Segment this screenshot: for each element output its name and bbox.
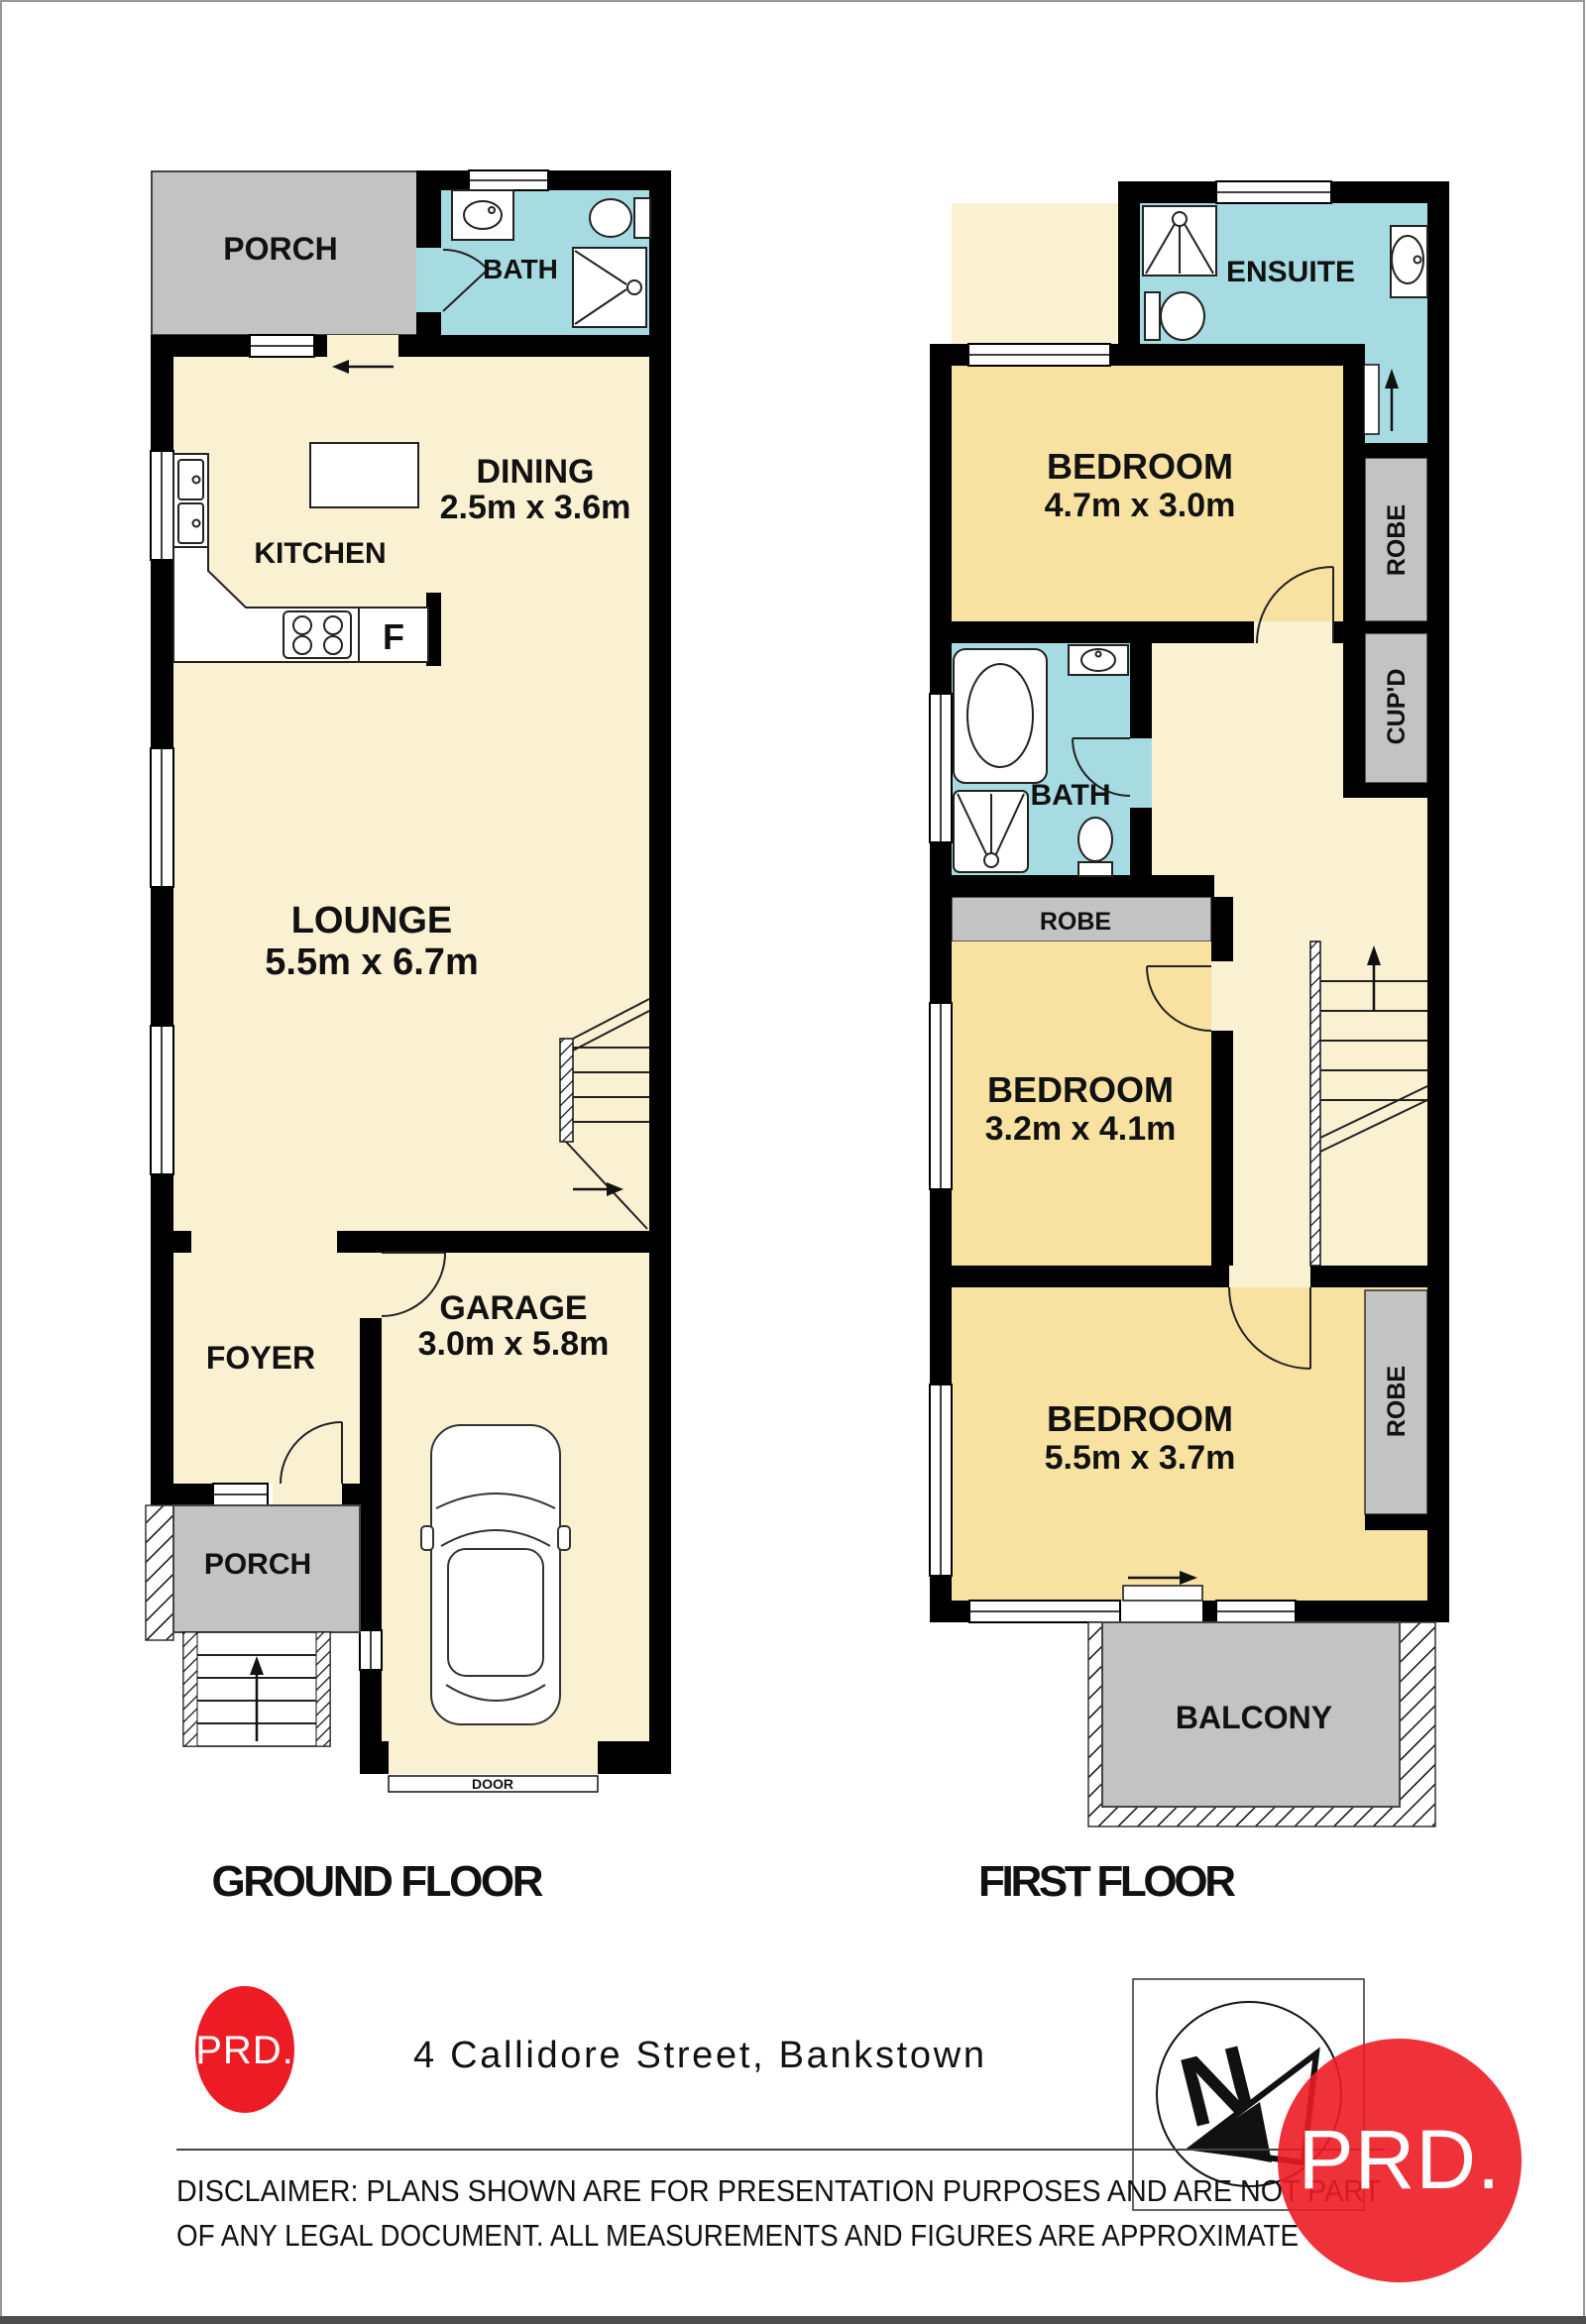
room-dims-bedroom-3: 5.5m x 3.7m xyxy=(1045,1439,1236,1477)
room-dims-bedroom-1: 4.7m x 3.0m xyxy=(1045,487,1236,524)
disclaimer-line-2: OF ANY LEGAL DOCUMENT. ALL MEASUREMENTS … xyxy=(176,2218,1299,2253)
room-label-garage: GARAGE xyxy=(439,1289,587,1327)
car-icon xyxy=(421,1425,570,1724)
room-label-robe-1: ROBE xyxy=(1383,504,1411,576)
bathtub-icon xyxy=(954,649,1047,783)
first-floor-plan: ENSUITE BEDROOM 4.7m x 3.0m ROBE CUP'D B… xyxy=(930,181,1449,1906)
room-dims-bedroom-2: 3.2m x 4.1m xyxy=(985,1110,1177,1148)
garage-door-label: DOOR xyxy=(472,1776,513,1792)
room-label-bath-ff: BATH xyxy=(1030,779,1110,812)
fridge-label: F xyxy=(383,616,404,657)
room-label-foyer: FOYER xyxy=(206,1340,315,1376)
porch-hatch xyxy=(146,1505,173,1640)
stair-landing-opening xyxy=(1364,365,1379,434)
floorplan-page: PORCH BATH KITCHEN DINING 2.5m x 3.6m LO… xyxy=(0,0,1586,2324)
stove-icon xyxy=(283,611,351,658)
prd-logo-small: PRD. xyxy=(195,1986,294,2113)
room-label-kitchen: KITCHEN xyxy=(254,537,386,570)
sink-icon xyxy=(1069,645,1128,675)
room-label-lounge: LOUNGE xyxy=(291,900,453,941)
prd-logo-text: PRD. xyxy=(1299,2113,1502,2206)
room-label-bedroom-3: BEDROOM xyxy=(1047,1398,1233,1439)
room-label-robe-2: ROBE xyxy=(1040,908,1111,936)
footer: N DISCLAIMER: PLANS SHOWN ARE FOR PRESEN… xyxy=(0,1979,1586,2324)
toilet-icon xyxy=(1078,818,1112,876)
room-dims-garage: 3.0m x 5.8m xyxy=(418,1325,610,1363)
room-dims-lounge: 5.5m x 6.7m xyxy=(265,941,478,983)
kitchen-island xyxy=(310,443,418,507)
bottom-bar xyxy=(0,2316,1586,2324)
room-label-ensuite: ENSUITE xyxy=(1226,256,1355,288)
toilet-icon xyxy=(1145,292,1204,340)
room-label-dining: DINING xyxy=(477,453,595,491)
address-text: 4 Callidore Street, Bankstown xyxy=(413,2035,984,2076)
stair-rail xyxy=(560,1039,573,1142)
entry-steps xyxy=(183,1632,330,1746)
ground-floor-plan: PORCH BATH KITCHEN DINING 2.5m x 3.6m LO… xyxy=(146,170,671,1906)
room-label-bath-gf: BATH xyxy=(483,254,558,284)
sink-icon xyxy=(1391,226,1427,297)
shower-icon xyxy=(573,248,646,327)
balcony-door-panel xyxy=(1123,1586,1202,1601)
toilet-icon xyxy=(590,198,650,238)
prd-logo-text: PRD. xyxy=(195,2029,294,2072)
first-floor-title: FIRST FLOOR xyxy=(978,1857,1236,1906)
room-label-porch-bottom: PORCH xyxy=(204,1548,311,1581)
room-label-cupboard: CUP'D xyxy=(1383,669,1411,745)
room-label-robe-3: ROBE xyxy=(1383,1366,1411,1437)
disclaimer-line-1: DISCLAIMER: PLANS SHOWN ARE FOR PRESENTA… xyxy=(176,2173,1381,2208)
room-label-bedroom-1: BEDROOM xyxy=(1047,446,1233,487)
prd-logo-large: PRD. xyxy=(1278,2039,1522,2282)
floorplan-canvas: PORCH BATH KITCHEN DINING 2.5m x 3.6m LO… xyxy=(0,0,1586,2324)
shower-icon xyxy=(954,791,1028,872)
stair-rail xyxy=(1310,941,1320,1266)
room-label-balcony: BALCONY xyxy=(1176,1700,1332,1735)
shower-icon xyxy=(1143,206,1216,276)
room-label-porch-top: PORCH xyxy=(223,231,338,267)
ground-floor-title: GROUND FLOOR xyxy=(212,1857,544,1906)
room-label-bedroom-2: BEDROOM xyxy=(987,1069,1174,1110)
room-dims-dining: 2.5m x 3.6m xyxy=(440,489,631,526)
